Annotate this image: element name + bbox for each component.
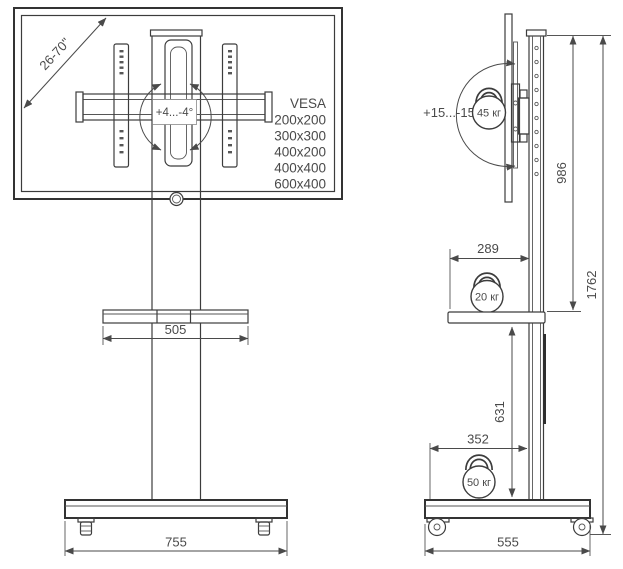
column-adjustment-holes xyxy=(535,46,538,175)
screen-center-height-label: 986 xyxy=(554,162,569,184)
cable-clip xyxy=(543,334,546,424)
dimension-base-width: 755 xyxy=(65,521,287,556)
base-width-label: 755 xyxy=(165,535,187,550)
dimension-screen-center-height: 986 xyxy=(547,36,611,312)
base-front-offset-label: 352 xyxy=(467,432,489,447)
shelf-weight-label: 20 кг xyxy=(475,292,499,304)
tv-logo-ring xyxy=(170,193,183,206)
kettlebell-icon-tv-weight: 45 кг xyxy=(473,91,506,130)
swivel-range-label: +4...-4° xyxy=(156,107,194,119)
vesa-size: 600x400 xyxy=(274,177,326,192)
front-view: 26-70" xyxy=(14,8,342,556)
dimension-total-height: 1762 xyxy=(584,36,611,535)
dimension-shelf-height: 631 xyxy=(492,327,512,497)
drawing-canvas: 26-70" xyxy=(0,0,623,569)
caster-front-right xyxy=(256,518,272,535)
shelf-height-label: 631 xyxy=(492,401,507,423)
caster-side-left xyxy=(427,518,449,536)
vesa-size: 200x200 xyxy=(274,113,326,128)
tilt-range-label: +15...-15° xyxy=(423,105,480,120)
tilt-bracket xyxy=(512,84,530,142)
vesa-size: 400x200 xyxy=(274,145,326,160)
shelf-side xyxy=(448,312,545,323)
base-weight-label: 50 кг xyxy=(467,477,491,489)
vesa-size: 300x300 xyxy=(274,129,326,144)
vesa-size-list: VESA 200x200 300x300 400x200 400x400 600… xyxy=(274,96,326,192)
kettlebell-icon-base-weight: 50 кг xyxy=(463,457,495,498)
vesa-rail-left xyxy=(114,44,129,167)
dimension-base-depth: 555 xyxy=(425,524,590,556)
tv-weight-label: 45 кг xyxy=(477,108,501,120)
shelf-width-label: 505 xyxy=(165,322,187,337)
vesa-title: VESA xyxy=(290,96,326,111)
tv-stand-technical-drawing: 26-70" xyxy=(0,0,623,569)
base-front xyxy=(65,500,287,535)
total-height-label: 1762 xyxy=(584,271,599,300)
screen-size-label: 26-70" xyxy=(36,35,73,73)
base-depth-label: 555 xyxy=(497,535,519,550)
shelf-depth-label: 289 xyxy=(477,241,499,256)
column-side xyxy=(527,30,547,500)
dimension-shelf-width: 505 xyxy=(103,322,248,345)
vesa-size: 400x400 xyxy=(274,161,326,176)
kettlebell-icon-shelf-weight: 20 кг xyxy=(471,275,503,312)
caster-front-left xyxy=(78,518,94,535)
side-view: +15...-15° 45 кг 289 20 кг 631 xyxy=(423,14,611,556)
base-side xyxy=(425,500,593,536)
vesa-rail-right xyxy=(223,44,238,167)
